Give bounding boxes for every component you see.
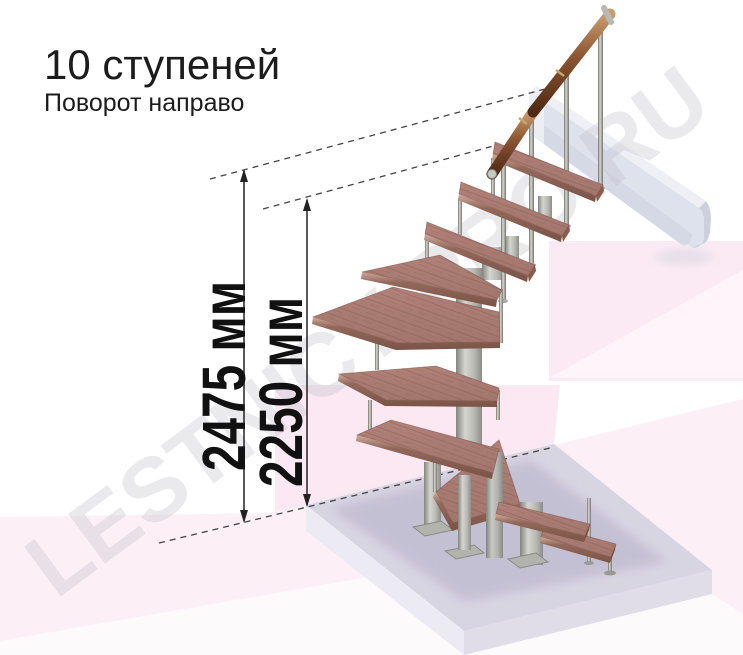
svg-text:2250 мм: 2250 мм	[247, 297, 315, 487]
svg-text:10 ступеней: 10 ступеней	[44, 41, 280, 88]
svg-text:Поворот направо: Поворот направо	[44, 89, 244, 117]
